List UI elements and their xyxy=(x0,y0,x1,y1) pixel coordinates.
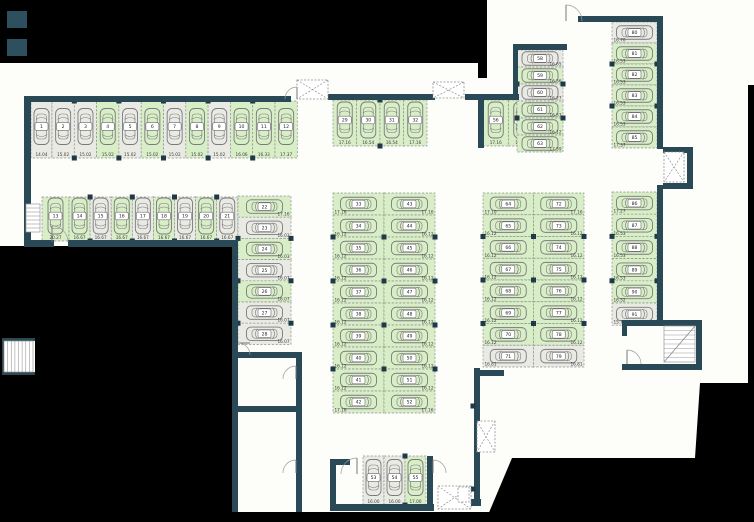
stall-number: 34 xyxy=(356,224,362,230)
stall-number: 16 xyxy=(119,214,125,220)
stall-number: 52 xyxy=(407,400,413,406)
stall-number: 55 xyxy=(413,475,419,481)
stall-dimension: 16.12 xyxy=(571,340,583,345)
stall-number: 12 xyxy=(283,124,289,130)
floor-plan-svg: 114.04215.02315.02415.02515.02615.02715.… xyxy=(0,0,754,522)
stall-dimension: 16.54 xyxy=(362,140,374,145)
stall-number: 5 xyxy=(129,124,132,130)
stall-number: 28 xyxy=(262,332,268,338)
stall-dimension: 16.12 xyxy=(422,298,434,303)
stall-dimension: 16.81 xyxy=(571,362,583,367)
stall-dimension: 17.16 xyxy=(335,210,347,215)
stall-dimension: 16.67 xyxy=(200,235,212,240)
stall-number: 23 xyxy=(262,226,268,232)
stall-dimension: 17.00 xyxy=(410,499,422,504)
shaft-icon xyxy=(297,80,328,99)
stall-number: 61 xyxy=(537,107,543,113)
stall-number: 6 xyxy=(151,124,154,130)
stall-dimension: 16.53 xyxy=(614,80,626,85)
stall-dimension: 15.02 xyxy=(57,152,69,157)
stall-dimension: 15.02 xyxy=(124,152,136,157)
stall-dimension: 17.27 xyxy=(614,209,626,214)
stall-number: 77 xyxy=(556,310,562,316)
shaft-icon xyxy=(433,82,464,98)
stall-group-row-53: 5316.005416.005517.00 xyxy=(363,454,426,508)
stall-dimension: 17.16 xyxy=(409,140,421,145)
stall-number: 8 xyxy=(195,124,198,130)
stall-dimension: 17.59 xyxy=(550,147,562,152)
stall-dimension: 16.12 xyxy=(422,254,434,259)
stall-number: 24 xyxy=(262,247,268,253)
stall-dimension: 16.12 xyxy=(422,364,434,369)
stall-number: 38 xyxy=(356,312,362,318)
stall-number: 64 xyxy=(505,202,511,208)
stall-dimension: 16.07 xyxy=(278,339,290,344)
stall-group-col-72: 7217.167316.127416.127516.127616.127716.… xyxy=(531,193,587,367)
stall-dimension: 16.53 xyxy=(614,101,626,106)
stall-dimension: 16.12 xyxy=(335,298,347,303)
stall-number: 42 xyxy=(356,400,362,406)
stall-number: 11 xyxy=(261,124,267,130)
stall-number: 48 xyxy=(407,312,413,318)
stall-dimension: 16.12 xyxy=(485,253,497,258)
stall-dimension: 16.70 xyxy=(614,38,626,43)
stall-dimension: 17.16 xyxy=(422,408,434,413)
stall-number: 81 xyxy=(632,51,638,57)
stairs-icon xyxy=(26,204,40,232)
stall-number: 87 xyxy=(632,223,638,229)
stall-dimension: 16.12 xyxy=(485,275,497,280)
stall-dimension: 16.52 xyxy=(614,298,626,303)
stall-number: 60 xyxy=(537,90,543,96)
stall-number: 82 xyxy=(632,72,638,78)
stall-dimension: 16.12 xyxy=(335,320,347,325)
stall-number: 2 xyxy=(62,124,65,130)
stall-number: 69 xyxy=(505,310,511,316)
stall-dimension: 16.12 xyxy=(571,231,583,236)
stall-dimension: 16.54 xyxy=(386,140,398,145)
stall-number: 56 xyxy=(493,118,499,124)
stall-dimension: 17.10 xyxy=(485,209,497,214)
stall-number: 76 xyxy=(556,289,562,295)
stall-dimension: 16.67 xyxy=(158,235,170,240)
stall-dimension: 16.65 xyxy=(550,62,562,67)
stall-number: 4 xyxy=(106,124,109,130)
stall-number: 65 xyxy=(505,223,511,229)
stall-dimension: 16.12 xyxy=(422,276,434,281)
stall-number: 31 xyxy=(389,118,395,124)
stall-number: 1 xyxy=(40,124,43,130)
stall-dimension: 16.33 xyxy=(258,152,270,157)
stairs-icon xyxy=(4,341,33,372)
stall-dimension: 16.07 xyxy=(278,275,290,280)
stall-dimension: 17.37 xyxy=(614,143,626,148)
stall-dimension: 15.02 xyxy=(169,152,181,157)
stall-number: 39 xyxy=(356,334,362,340)
stall-number: 71 xyxy=(505,354,511,360)
stall-dimension: 14.04 xyxy=(36,152,48,157)
stall-number: 83 xyxy=(632,93,638,99)
stall-number: 29 xyxy=(342,118,348,124)
stall-number: 54 xyxy=(392,475,398,481)
stall-number: 19 xyxy=(182,214,188,220)
stall-number: 26 xyxy=(262,289,268,295)
stall-number: 49 xyxy=(407,334,413,340)
stall-dimension: 17.16 xyxy=(278,212,290,217)
stall-number: 73 xyxy=(556,223,562,229)
stall-group-col-64: 6417.106516.126616.126716.126816.126916.… xyxy=(481,193,537,367)
stall-dimension: 16.12 xyxy=(335,254,347,259)
stall-number: 37 xyxy=(356,290,362,296)
stall-group-col-58: 5816.655916.566016.276116.536216.126317.… xyxy=(515,50,566,152)
stall-dimension: 17.16 xyxy=(490,140,502,145)
accent-block xyxy=(7,39,27,56)
stall-number: 3 xyxy=(84,124,87,130)
stall-dimension: 15.02 xyxy=(102,152,114,157)
stall-group-col-33: 3317.163416.123516.123616.123716.123816.… xyxy=(331,193,387,413)
stall-dimension: 16.53 xyxy=(614,253,626,258)
stall-dimension: 16.12 xyxy=(485,296,497,301)
stall-dimension: 16.12 xyxy=(571,275,583,280)
stall-dimension: 16.12 xyxy=(422,342,434,347)
stall-dimension: 16.07 xyxy=(278,318,290,323)
stall-number: 20 xyxy=(203,214,209,220)
stall-dimension: 16.12 xyxy=(485,318,497,323)
stall-number: 62 xyxy=(537,124,543,130)
stall-number: 86 xyxy=(632,201,638,207)
stall-number: 68 xyxy=(505,289,511,295)
stall-dimension: 16.12 xyxy=(335,386,347,391)
shaft-icon xyxy=(477,421,495,452)
stall-number: 80 xyxy=(632,30,638,36)
stall-dimension: 16.56 xyxy=(550,79,562,84)
stall-dimension: 16.12 xyxy=(571,296,583,301)
stall-dimension: 17.16 xyxy=(422,210,434,215)
stall-number: 70 xyxy=(505,332,511,338)
dashed-box xyxy=(458,487,469,502)
stall-number: 89 xyxy=(632,267,638,273)
stall-dimension: 16.12 xyxy=(550,130,562,135)
stall-number: 14 xyxy=(77,214,83,220)
stall-dimension: 16.00 xyxy=(389,499,401,504)
stall-dimension: 16.53 xyxy=(614,231,626,236)
stall-dimension: 16.12 xyxy=(485,231,497,236)
stall-dimension: 16.12 xyxy=(422,386,434,391)
stall-number: 43 xyxy=(407,202,413,208)
stall-group-col-22: 2217.162316.032416.032516.072616.072716.… xyxy=(236,196,294,344)
stall-number: 35 xyxy=(356,246,362,252)
stall-number: 30 xyxy=(365,118,371,124)
stall-dimension: 16.12 xyxy=(485,340,497,345)
stall-number: 91 xyxy=(632,312,638,318)
stairs-icon xyxy=(664,326,695,362)
stall-group-row-1: 114.04215.02315.02415.02515.02615.02715.… xyxy=(31,99,297,161)
stall-dimension: 16.12 xyxy=(335,342,347,347)
stall-number: 79 xyxy=(556,354,562,360)
stall-dimension: 16.07 xyxy=(278,297,290,302)
stall-dimension: 16.53 xyxy=(614,59,626,64)
stall-dimension: 17.16 xyxy=(339,140,351,145)
stall-dimension: 16.81 xyxy=(485,362,497,367)
stall-number: 78 xyxy=(556,332,562,338)
stall-dimension: 16.67 xyxy=(179,235,191,240)
stall-dimension: 16.67 xyxy=(137,235,149,240)
stall-number: 25 xyxy=(262,268,268,274)
stall-number: 84 xyxy=(632,114,638,120)
stall-dimension: 16.67 xyxy=(221,235,233,240)
stall-dimension: 15.02 xyxy=(79,152,91,157)
stall-number: 67 xyxy=(505,267,511,273)
stall-dimension: 16.12 xyxy=(571,253,583,258)
stall-dimension: 16.27 xyxy=(550,96,562,101)
stall-number: 51 xyxy=(407,378,413,384)
stall-dimension: 16.12 xyxy=(335,232,347,237)
stall-number: 40 xyxy=(356,356,362,362)
stall-dimension: 16.67 xyxy=(74,235,86,240)
stall-dimension: 16.03 xyxy=(278,233,290,238)
stall-number: 27 xyxy=(262,310,268,316)
stall-number: 74 xyxy=(556,245,562,251)
stall-dimension: 16.53 xyxy=(614,122,626,127)
stall-number: 46 xyxy=(407,268,413,274)
stall-number: 15 xyxy=(98,214,104,220)
stall-number: 7 xyxy=(173,124,176,130)
stall-number: 66 xyxy=(505,245,511,251)
stall-dimension: 17.37 xyxy=(280,152,292,157)
stall-dimension: 16.12 xyxy=(335,276,347,281)
shaft-icon xyxy=(664,152,684,182)
stall-dimension: 16.53 xyxy=(614,275,626,280)
stall-number: 44 xyxy=(407,224,413,230)
stall-dimension: 16.12 xyxy=(422,232,434,237)
stall-group-col-80: 8016.708116.538216.538316.538416.538517.… xyxy=(610,22,660,148)
stall-number: 50 xyxy=(407,356,413,362)
stall-number: 33 xyxy=(356,202,362,208)
stall-number: 59 xyxy=(537,73,543,79)
stall-number: 32 xyxy=(412,118,418,124)
stall-dimension: 16.06 xyxy=(236,152,248,157)
stall-dimension: 17.16 xyxy=(571,209,583,214)
stall-dimension: 15.02 xyxy=(191,152,203,157)
stall-number: 36 xyxy=(356,268,362,274)
stall-number: 21 xyxy=(224,214,230,220)
stall-number: 45 xyxy=(407,246,413,252)
stall-number: 18 xyxy=(161,214,167,220)
stall-dimension: 16.12 xyxy=(571,318,583,323)
stall-number: 41 xyxy=(356,378,362,384)
stall-dimension: 15.02 xyxy=(146,152,158,157)
stall-dimension: 16.00 xyxy=(368,499,380,504)
stall-group-col-43: 4317.164416.124516.124616.124716.124816.… xyxy=(382,193,438,413)
stall-dimension: 16.67 xyxy=(95,235,107,240)
stall-group-row-29: 2917.163016.543116.543217.16 xyxy=(333,98,427,149)
stall-group-row-2: 1320.271416.671516.671616.671716.671816.… xyxy=(42,195,238,244)
stall-number: 63 xyxy=(537,141,543,147)
stall-number: 53 xyxy=(371,475,377,481)
stall-number: 22 xyxy=(262,204,268,210)
stall-number: 10 xyxy=(239,124,245,130)
stall-number: 9 xyxy=(218,124,221,130)
stall-dimension: 16.67 xyxy=(116,235,128,240)
stall-number: 88 xyxy=(632,245,638,251)
stall-number: 58 xyxy=(537,56,543,62)
stall-number: 17 xyxy=(140,214,146,220)
stall-number: 13 xyxy=(53,214,59,220)
stall-group-col-86: 8617.278716.538816.538916.539016.529115.… xyxy=(610,192,660,325)
stall-number: 72 xyxy=(556,202,562,208)
stall-number: 85 xyxy=(632,135,638,141)
stall-dimension: 17.16 xyxy=(335,408,347,413)
stall-dimension: 16.12 xyxy=(335,364,347,369)
stall-number: 90 xyxy=(632,290,638,296)
stall-dimension: 15.02 xyxy=(213,152,225,157)
stall-dimension: 16.12 xyxy=(422,320,434,325)
stall-dimension: 16.53 xyxy=(550,113,562,118)
stall-number: 47 xyxy=(407,290,413,296)
stall-dimension: 20.27 xyxy=(50,235,62,240)
stall-dimension: 16.03 xyxy=(278,254,290,259)
accent-block xyxy=(7,11,27,28)
stall-number: 75 xyxy=(556,267,562,273)
floor-plan: 114.04215.02315.02415.02515.02615.02715.… xyxy=(0,0,754,522)
